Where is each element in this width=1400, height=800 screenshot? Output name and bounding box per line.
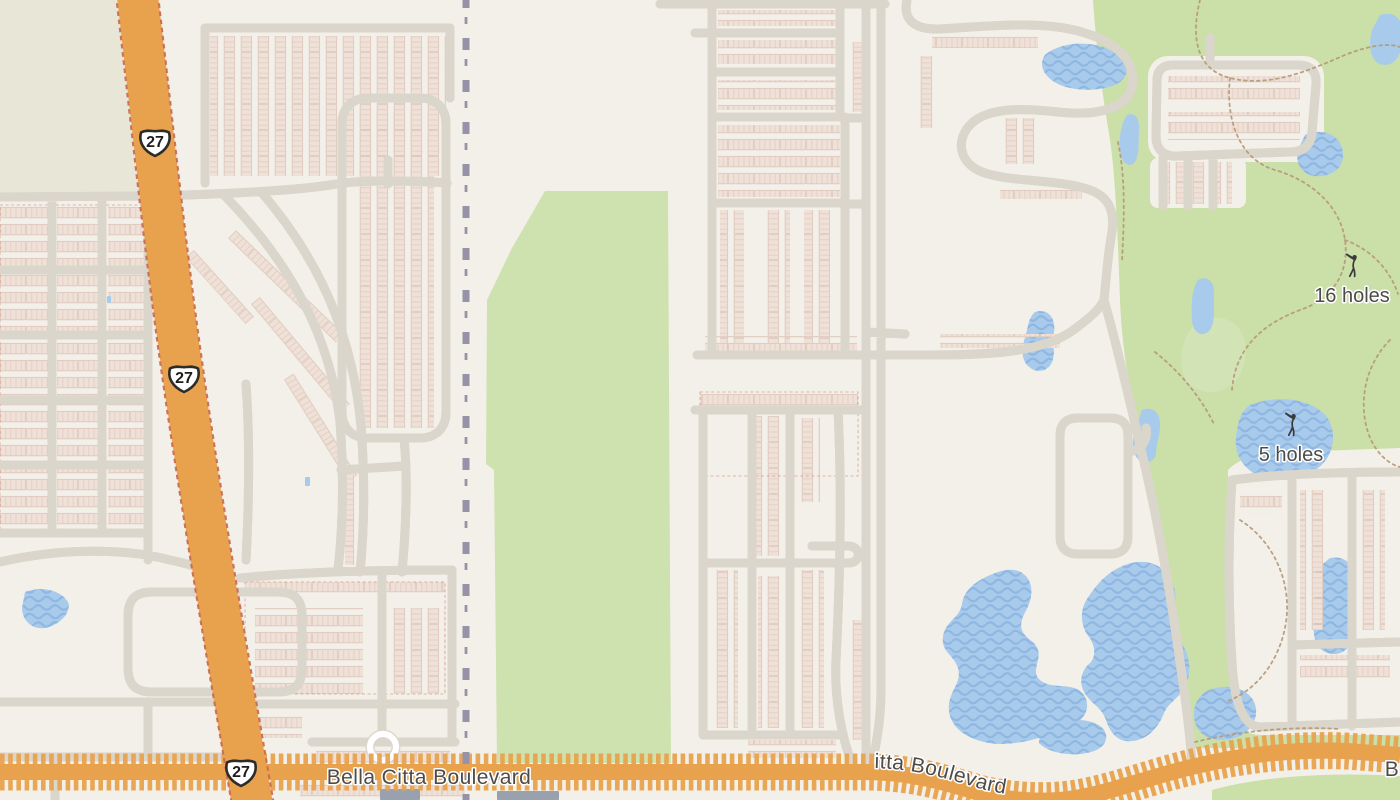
boulevard-label-partial: B	[1385, 758, 1399, 781]
central-green-field	[486, 191, 671, 763]
swimming-pool	[107, 296, 111, 303]
golf-course-5-holes-label: 5 holes	[1259, 444, 1324, 466]
swimming-pool	[305, 477, 310, 486]
svg-text:27: 27	[146, 134, 164, 151]
boulevard-label: Bella Citta Boulevard	[327, 766, 532, 789]
golf-course-16-holes-label: 16 holes	[1314, 285, 1390, 307]
golf-clubhouse-parcel	[1148, 56, 1324, 162]
svg-text:27: 27	[232, 764, 250, 781]
svg-text:27: 27	[175, 370, 193, 387]
map-canvas[interactable]: Bella Citta Boulevard Bella Citta Boulev…	[0, 0, 1400, 800]
